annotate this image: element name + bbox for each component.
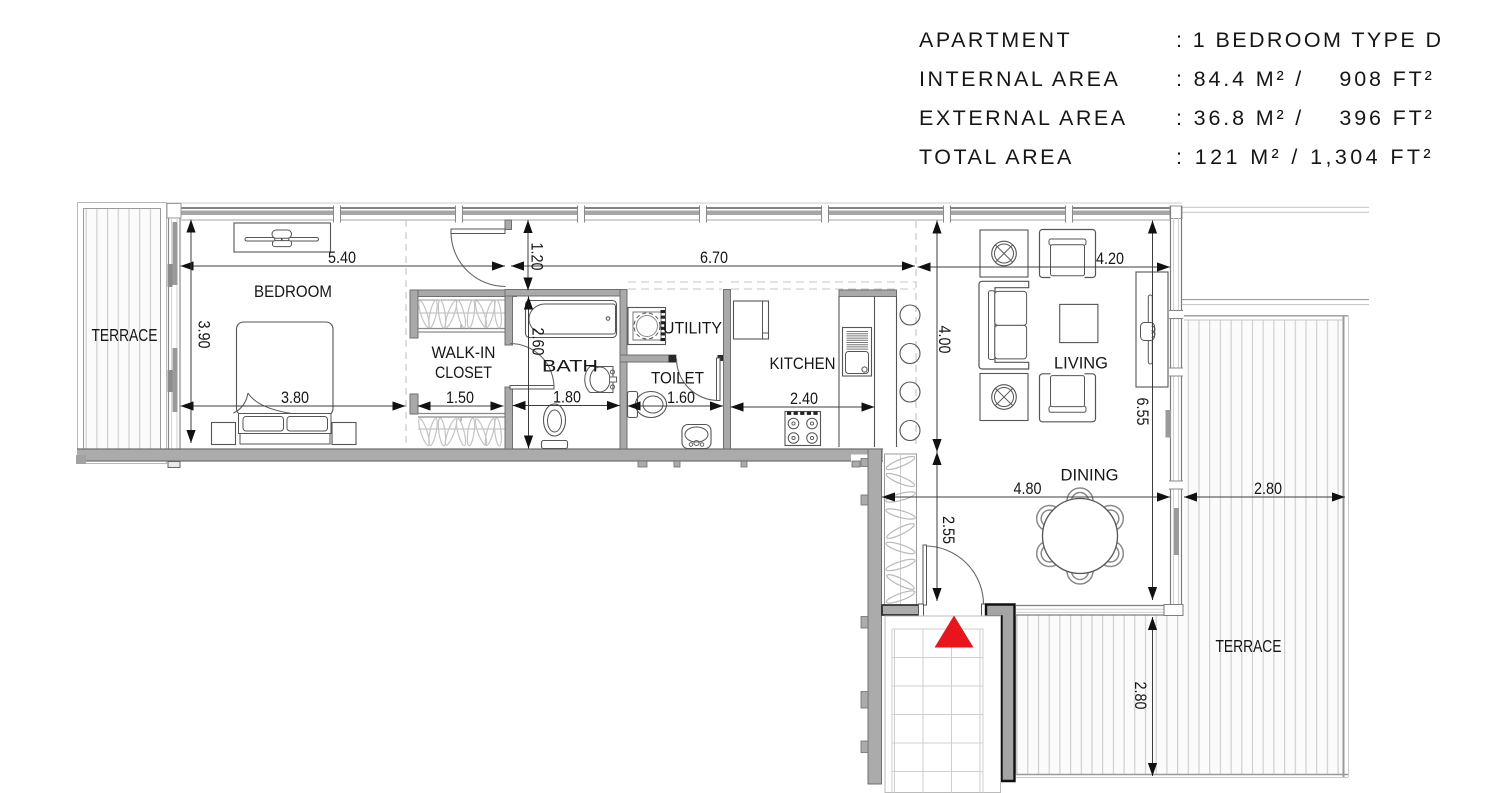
svg-text:: 84.4 M² / 908 FT²: : 84.4 M² / 908 FT² (1176, 67, 1435, 91)
svg-text:TOILET: TOILET (651, 370, 704, 388)
svg-text:3.90: 3.90 (195, 321, 213, 349)
svg-text:LIVING: LIVING (1054, 355, 1108, 373)
svg-text:2.60: 2.60 (529, 328, 547, 356)
svg-text:1.80: 1.80 (553, 389, 581, 407)
svg-text:1.20: 1.20 (528, 243, 546, 271)
svg-text:1.60: 1.60 (667, 389, 695, 407)
svg-text:: 36.8 M² / 396 FT²: : 36.8 M² / 396 FT² (1176, 106, 1435, 130)
svg-text:4.20: 4.20 (1096, 250, 1124, 268)
svg-text:UTILITY: UTILITY (663, 320, 722, 338)
svg-text:TERRACE: TERRACE (1216, 636, 1282, 656)
svg-text:4.00: 4.00 (935, 326, 953, 354)
svg-text:TERRACE: TERRACE (92, 325, 158, 345)
svg-text:CLOSET: CLOSET (435, 364, 492, 382)
svg-text:KITCHEN: KITCHEN (770, 355, 836, 373)
svg-text:3.80: 3.80 (281, 389, 309, 407)
svg-text:2.80: 2.80 (1131, 682, 1149, 710)
svg-text:: 1 BEDROOM TYPE D: : 1 BEDROOM TYPE D (1176, 28, 1443, 52)
svg-text:EXTERNAL AREA: EXTERNAL AREA (919, 106, 1128, 130)
svg-text:6.70: 6.70 (700, 249, 728, 267)
svg-text:BATH: BATH (542, 358, 598, 376)
svg-text:4.80: 4.80 (1014, 480, 1042, 498)
svg-text:DINING: DINING (1061, 467, 1119, 485)
svg-text:APARTMENT: APARTMENT (919, 28, 1072, 52)
svg-text:6.55: 6.55 (1133, 398, 1151, 426)
svg-text:2.55: 2.55 (939, 516, 957, 544)
svg-text:2.80: 2.80 (1254, 480, 1282, 498)
svg-text:1.50: 1.50 (446, 389, 474, 407)
svg-text:2.40: 2.40 (790, 390, 818, 408)
svg-text:5.40: 5.40 (328, 249, 356, 267)
svg-text:: 121 M² / 1,304 FT²: : 121 M² / 1,304 FT² (1176, 145, 1434, 169)
svg-text:INTERNAL AREA: INTERNAL AREA (919, 67, 1120, 91)
svg-text:WALK-IN: WALK-IN (432, 344, 496, 362)
svg-text:TOTAL AREA: TOTAL AREA (919, 145, 1074, 169)
svg-text:BEDROOM: BEDROOM (254, 283, 332, 301)
